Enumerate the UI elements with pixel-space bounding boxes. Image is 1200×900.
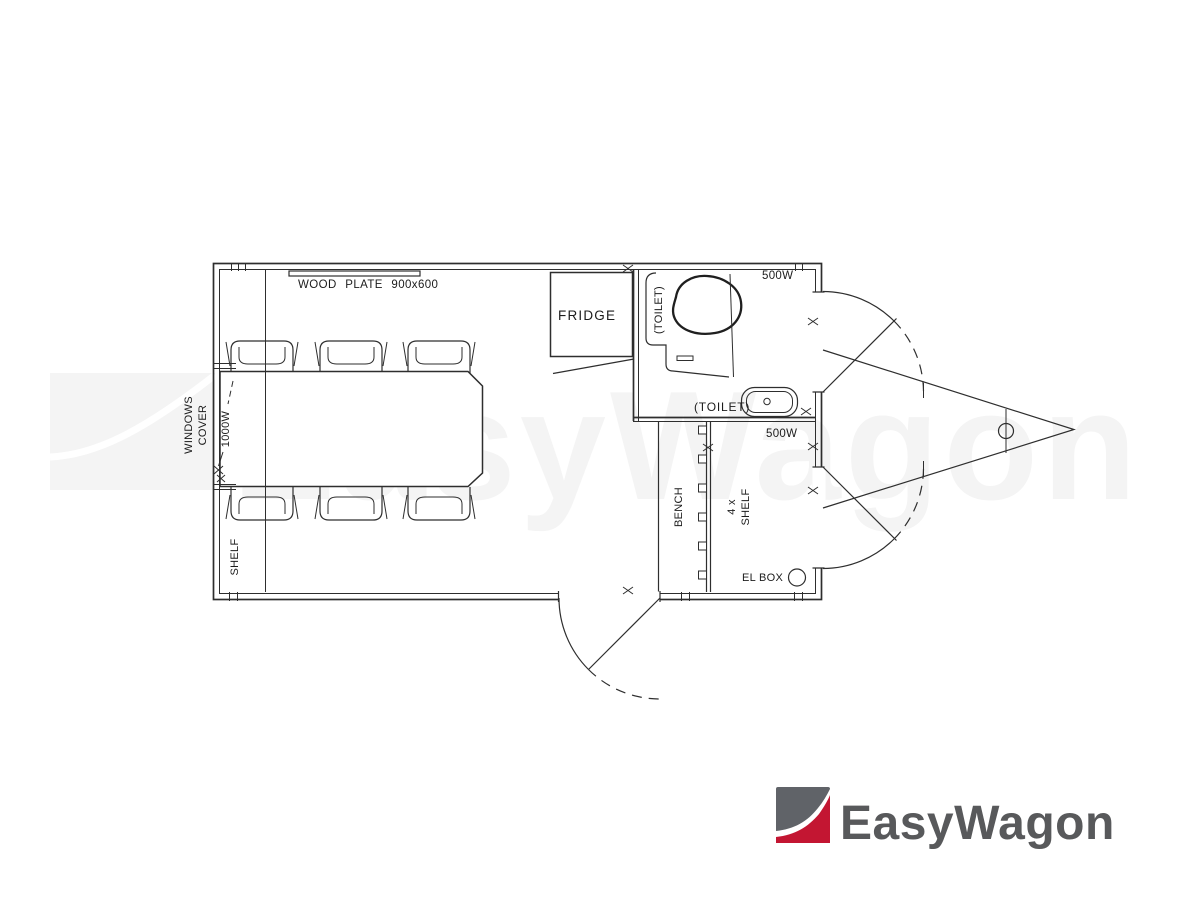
fridge-label: FRIDGE: [558, 308, 616, 323]
windows-cover-label-2: COVER: [197, 405, 209, 446]
shelf-bracket-3: [699, 484, 707, 492]
floor-plan-page: EasyWagon: [0, 0, 1200, 900]
toilet-sink-label: (TOILET): [694, 400, 750, 414]
brand-logo: EasyWagon: [776, 787, 1115, 850]
shelf-4x-label-1: 4 x: [726, 499, 738, 515]
shelf-4x-label-2: SHELF: [740, 489, 752, 526]
bottom-door: [559, 598, 660, 699]
door-arc-bottom-dashed: [589, 670, 661, 700]
heater-left-label: 1000W: [220, 411, 232, 448]
door-opening-right-bottom: [813, 468, 826, 568]
door-arc-bottom: [559, 598, 589, 670]
shelf-bracket-2: [699, 455, 707, 463]
shelf-bracket-6: [699, 571, 707, 579]
door-arc-right-top: [823, 292, 894, 322]
toilet-room-label: (TOILET): [653, 286, 665, 334]
el-box-label: EL BOX: [742, 572, 783, 584]
heater-top-label: 500W: [762, 270, 793, 282]
door-opening-right-top: [813, 293, 826, 392]
wood-plate-label: WOOD PLATE 900x600: [298, 279, 438, 291]
shelf-bracket-5: [699, 542, 707, 550]
door-arc-right-bottom: [823, 539, 894, 569]
heater-bottom-label: 500W: [766, 428, 797, 440]
dining-table: [220, 372, 483, 487]
windows-cover-label-1: WINDOWS: [183, 396, 195, 454]
shelf-bracket-1: [699, 426, 707, 434]
bench-label: BENCH: [673, 487, 685, 527]
wood-plate-bar: [289, 271, 420, 276]
el-box-circle: [789, 569, 806, 586]
floor-plan-svg: EasyWagon: [0, 0, 1200, 900]
brand-logo-icon: [776, 787, 830, 843]
brand-logo-text: EasyWagon: [840, 797, 1115, 850]
shelf-left-label: SHELF: [229, 539, 241, 576]
shelf-bracket-4: [699, 513, 707, 521]
toilet-door-handle: [677, 356, 693, 361]
door-opening-bottom: [559, 592, 660, 603]
door-leaf-bottom: [589, 598, 661, 670]
